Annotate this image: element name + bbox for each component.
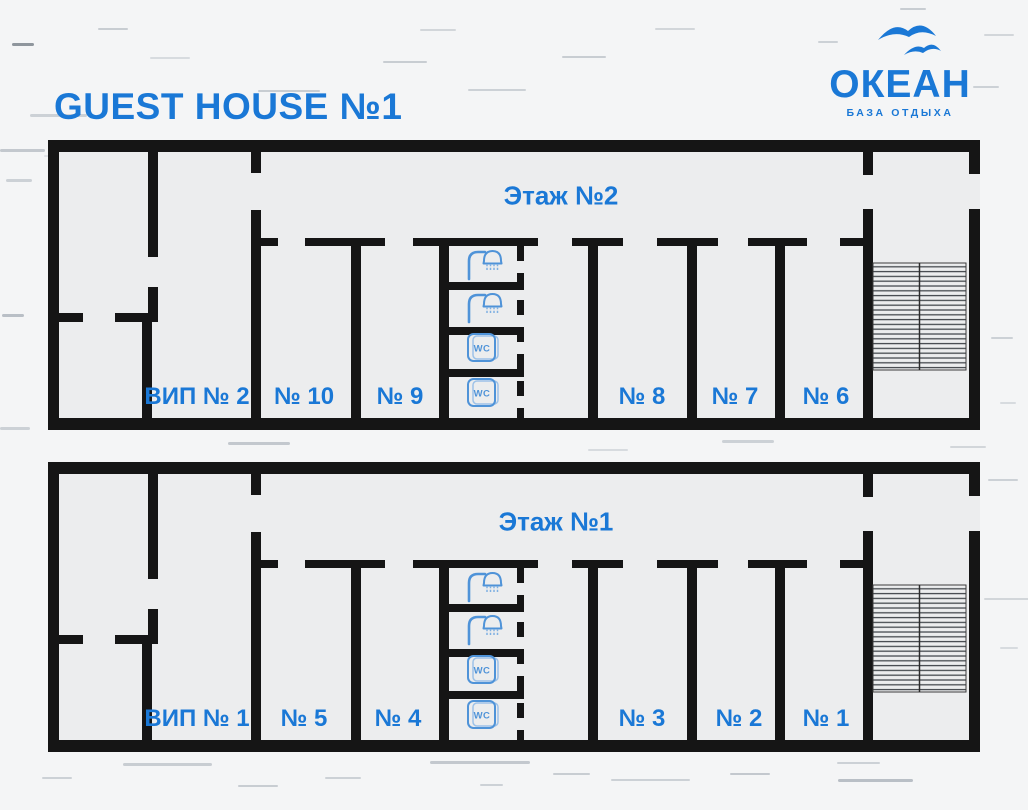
floor-plan-poster: GUEST HOUSE №1 ОКЕАН БАЗА ОТДЫХА bbox=[0, 0, 1028, 810]
room-label-5: № 5 bbox=[281, 705, 328, 733]
room-label-3: № 3 bbox=[619, 705, 666, 733]
room-label-6: № 6 bbox=[803, 383, 850, 411]
floor-1-label: Этаж №1 bbox=[499, 507, 614, 538]
room-label-4: № 4 bbox=[375, 705, 422, 733]
wc-icon-label: WC bbox=[474, 389, 491, 400]
room-label-10: № 10 bbox=[274, 383, 334, 411]
room-label-vip-2: ВИП № 2 bbox=[144, 383, 249, 411]
wc-icon-label: WC bbox=[474, 711, 491, 722]
room-label-8: № 8 bbox=[619, 383, 666, 411]
room-label-1: № 1 bbox=[803, 705, 850, 733]
room-label-7: № 7 bbox=[712, 383, 759, 411]
wc-icon-label: WC bbox=[474, 666, 491, 677]
wc-icon-label: WC bbox=[474, 344, 491, 355]
room-label-vip-1: ВИП № 1 bbox=[144, 705, 249, 733]
room-label-9: № 9 bbox=[377, 383, 424, 411]
floor-2-label: Этаж №2 bbox=[504, 181, 619, 212]
room-label-2: № 2 bbox=[716, 705, 763, 733]
